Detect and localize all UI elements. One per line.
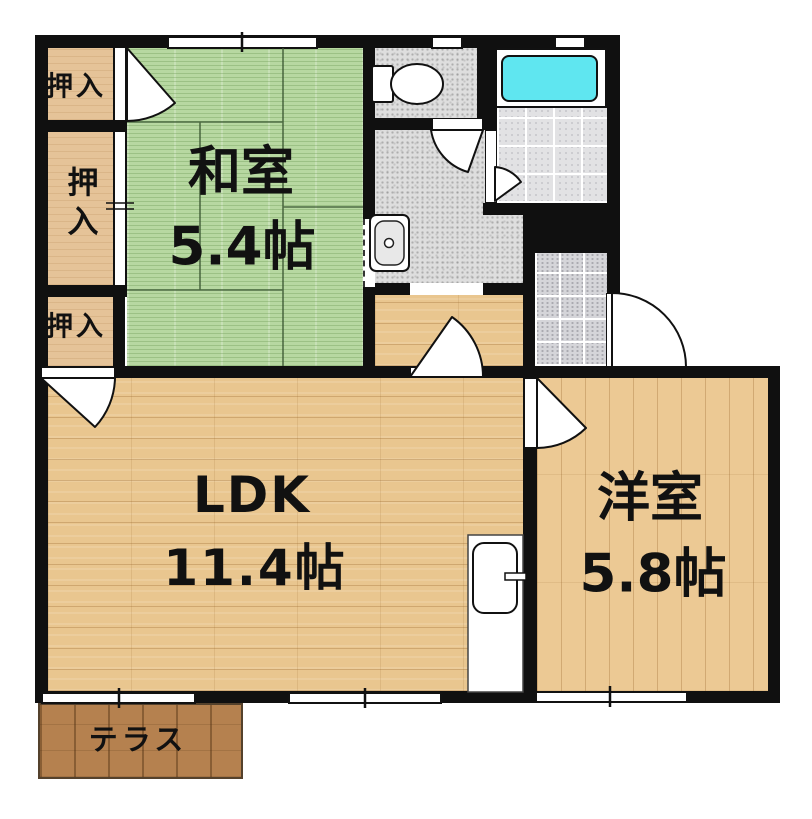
window-ticks [119, 32, 610, 708]
fusuma-ticks [106, 203, 134, 209]
bath-door-arc [495, 167, 521, 201]
terrace-label: テラス [89, 726, 187, 755]
toilet-icon [372, 64, 443, 104]
youshitsu-size-label: 5.8帖 [580, 548, 727, 601]
youshitsu-door-arc [537, 378, 586, 448]
ldk-name-label: LDK [193, 470, 311, 520]
bathtub-icon [502, 56, 597, 101]
closet-bottom-label: 押入 [46, 314, 106, 341]
plan-overlay [0, 0, 812, 819]
closet-top-label: 押入 [46, 74, 106, 101]
closet-middle-label: 押入 [64, 166, 95, 244]
youshitsu-name-label: 洋室 [597, 472, 703, 525]
washitsu-door-arc [127, 48, 175, 121]
closet-door-arc [41, 378, 115, 427]
toilet-door-arc [431, 130, 483, 172]
washbasin-icon [370, 215, 409, 271]
entrance-door-arc [612, 293, 686, 367]
kitchen-sink-icon [468, 535, 526, 692]
hallway-door-arc [410, 317, 483, 377]
floor-plan: 押入 押入 押入 和室 5.4帖 LDK 11.4帖 洋室 5.8帖 テラス [0, 0, 812, 819]
ldk-size-label: 11.4帖 [163, 543, 346, 593]
washitsu-name-label: 和室 [188, 146, 294, 199]
washitsu-size-label: 5.4帖 [169, 221, 316, 274]
